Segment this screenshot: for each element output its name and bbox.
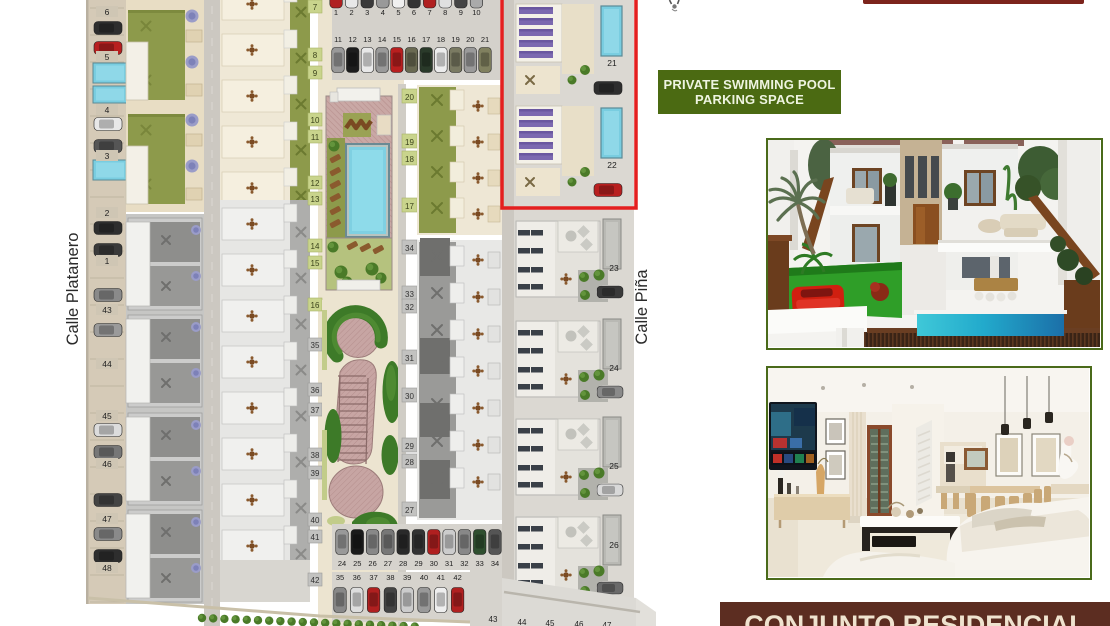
svg-text:38: 38	[311, 451, 320, 460]
svg-text:42: 42	[453, 573, 461, 582]
svg-text:8: 8	[313, 51, 318, 60]
svg-text:34: 34	[405, 244, 414, 253]
svg-text:44: 44	[518, 618, 527, 626]
svg-text:40: 40	[420, 573, 428, 582]
svg-text:32: 32	[460, 559, 468, 568]
svg-text:1: 1	[334, 8, 338, 17]
svg-text:44: 44	[102, 359, 112, 369]
svg-text:35: 35	[311, 341, 320, 350]
svg-text:41: 41	[311, 533, 320, 542]
svg-text:30: 30	[405, 392, 414, 401]
svg-text:4: 4	[381, 8, 385, 17]
svg-text:15: 15	[311, 259, 320, 268]
svg-text:13: 13	[363, 35, 371, 44]
svg-text:10: 10	[311, 116, 320, 125]
svg-text:38: 38	[386, 573, 394, 582]
svg-text:8: 8	[443, 8, 447, 17]
svg-text:47: 47	[102, 514, 112, 524]
svg-text:18: 18	[405, 155, 414, 164]
svg-text:29: 29	[405, 442, 414, 451]
svg-text:1: 1	[105, 256, 110, 266]
svg-text:26: 26	[609, 540, 619, 550]
svg-text:36: 36	[353, 573, 361, 582]
svg-text:21: 21	[607, 58, 617, 68]
svg-text:21: 21	[481, 35, 489, 44]
svg-text:24: 24	[609, 363, 619, 373]
svg-text:41: 41	[437, 573, 445, 582]
svg-text:45: 45	[102, 411, 112, 421]
svg-text:30: 30	[430, 559, 438, 568]
svg-text:14: 14	[311, 242, 320, 251]
svg-text:Calle Piña: Calle Piña	[633, 269, 651, 345]
svg-text:25: 25	[609, 461, 619, 471]
svg-text:37: 37	[369, 573, 377, 582]
svg-text:40: 40	[311, 516, 320, 525]
svg-text:13: 13	[311, 195, 320, 204]
svg-text:47: 47	[603, 621, 612, 626]
svg-text:16: 16	[407, 35, 415, 44]
svg-text:39: 39	[403, 573, 411, 582]
svg-text:15: 15	[393, 35, 401, 44]
svg-text:28: 28	[399, 559, 407, 568]
svg-text:Calle Platanero: Calle Platanero	[64, 233, 82, 346]
svg-text:10: 10	[472, 8, 480, 17]
svg-text:39: 39	[311, 469, 320, 478]
svg-text:32: 32	[405, 303, 414, 312]
svg-text:34: 34	[491, 559, 499, 568]
svg-text:37: 37	[311, 406, 320, 415]
svg-text:20: 20	[405, 93, 414, 102]
svg-text:5: 5	[105, 52, 110, 62]
svg-text:27: 27	[384, 559, 392, 568]
svg-text:29: 29	[414, 559, 422, 568]
svg-text:9: 9	[313, 69, 318, 78]
svg-text:2: 2	[105, 208, 110, 218]
svg-text:6: 6	[105, 7, 110, 17]
svg-text:17: 17	[405, 202, 414, 211]
svg-text:26: 26	[368, 559, 376, 568]
svg-text:16: 16	[311, 301, 320, 310]
svg-text:36: 36	[311, 386, 320, 395]
svg-text:24: 24	[338, 559, 346, 568]
svg-text:7: 7	[428, 8, 432, 17]
svg-text:3: 3	[365, 8, 369, 17]
svg-text:23: 23	[609, 263, 619, 273]
svg-text:48: 48	[102, 563, 112, 573]
svg-text:19: 19	[451, 35, 459, 44]
svg-text:46: 46	[102, 459, 112, 469]
svg-text:4: 4	[105, 105, 110, 115]
svg-text:31: 31	[405, 354, 414, 363]
svg-text:43: 43	[102, 305, 112, 315]
svg-text:6: 6	[412, 8, 416, 17]
svg-text:12: 12	[349, 35, 357, 44]
svg-text:17: 17	[422, 35, 430, 44]
svg-text:27: 27	[405, 506, 414, 515]
svg-text:7: 7	[313, 3, 318, 12]
svg-text:42: 42	[311, 576, 320, 585]
svg-text:28: 28	[405, 458, 414, 467]
svg-text:25: 25	[353, 559, 361, 568]
svg-text:19: 19	[405, 138, 414, 147]
svg-text:3: 3	[105, 151, 110, 161]
svg-text:5: 5	[396, 8, 400, 17]
svg-text:9: 9	[459, 8, 463, 17]
svg-text:43: 43	[489, 615, 498, 624]
svg-text:11: 11	[334, 35, 342, 44]
svg-text:20: 20	[466, 35, 474, 44]
svg-text:46: 46	[575, 620, 584, 626]
svg-text:14: 14	[378, 35, 386, 44]
svg-text:33: 33	[405, 290, 414, 299]
svg-text:18: 18	[437, 35, 445, 44]
svg-text:35: 35	[336, 573, 344, 582]
svg-text:12: 12	[311, 179, 320, 188]
svg-text:33: 33	[476, 559, 484, 568]
svg-text:2: 2	[350, 8, 354, 17]
svg-text:31: 31	[445, 559, 453, 568]
svg-text:45: 45	[546, 619, 555, 626]
svg-text:11: 11	[311, 133, 320, 142]
svg-text:22: 22	[607, 160, 617, 170]
